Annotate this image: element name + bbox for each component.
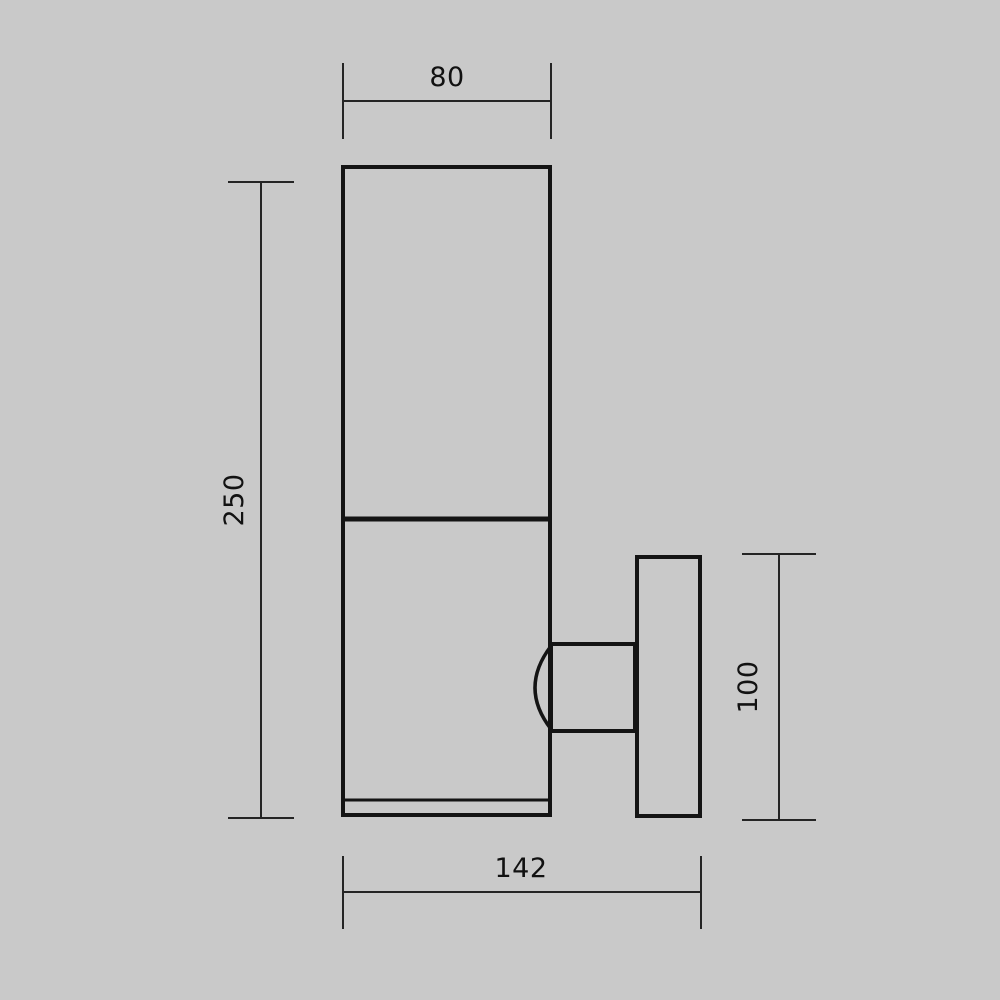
dimension-drawing: 80 250 100 142: [0, 0, 1000, 1000]
dim-label-overall-depth: 142: [494, 853, 547, 884]
wall-plate-outline: [637, 557, 700, 816]
dim-label-wall-plate-height: 100: [733, 660, 764, 713]
dim-label-body-height: 250: [219, 473, 250, 526]
dimension-overall-depth: 142: [343, 853, 701, 929]
drawing-canvas: 80 250 100 142: [0, 0, 1000, 1000]
dimension-body-width: 80: [343, 62, 551, 139]
mounting-arm-outline: [551, 644, 635, 731]
dimension-body-height: 250: [219, 182, 294, 818]
dimension-wall-plate-height: 100: [733, 554, 816, 820]
lamp-body-outline: [343, 167, 550, 815]
dim-label-body-width: 80: [429, 62, 464, 93]
lamp-outline: [341, 167, 700, 816]
